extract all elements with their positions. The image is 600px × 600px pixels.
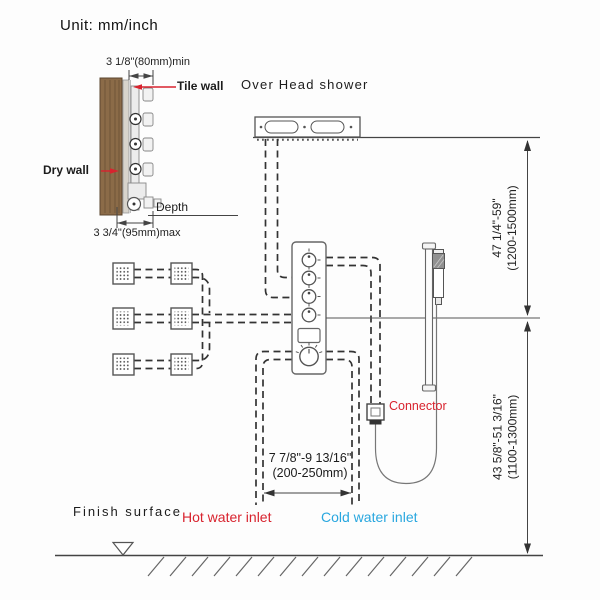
- pipe-overhead-shower: [266, 139, 293, 298]
- dry-wall-label: Dry wall: [43, 163, 89, 177]
- ground-hatching: [148, 557, 472, 576]
- overhead-shower-label: Over Head shower: [241, 77, 369, 92]
- slide-bar-top-mount: [423, 243, 436, 249]
- hot-water-inlet-label: Hot water inlet: [182, 509, 271, 525]
- valve-display: [298, 329, 320, 343]
- tile-wall-label: Tile wall: [177, 79, 223, 93]
- depth-label: Depth: [156, 200, 188, 214]
- level-marker-icon: [113, 543, 133, 556]
- dimension-inlet-spacing: [264, 490, 351, 497]
- dim-95mm-label: 3 3/4"(95mm)max: [76, 227, 198, 239]
- lower-height-inch: 43 5/8"-51 3/16": [491, 370, 506, 505]
- slide-bar: [426, 249, 433, 386]
- pipe-hand-shower: [326, 258, 380, 405]
- connector-label: Connector: [389, 399, 447, 413]
- overhead-shower: [253, 117, 540, 140]
- inlet-spacing-dimension-label: 7 7/8"-9 13/16" (200-250mm): [247, 451, 373, 481]
- tile-wall-arrow: [133, 84, 176, 89]
- inlet-spacing-mm: (200-250mm): [247, 466, 373, 481]
- dim-80mm-label: 3 1/8"(80mm)min: [92, 56, 204, 68]
- dimension-right: [524, 140, 531, 554]
- hand-shower-wand: [433, 250, 445, 305]
- body-jets: [113, 263, 192, 375]
- pipe-hot-water: [256, 352, 292, 506]
- upper-height-dimension-label: 47 1/4"-59" (1200-1500mm): [490, 163, 520, 293]
- slide-bar-bottom-mount: [423, 385, 436, 391]
- connector-icon: [367, 404, 384, 425]
- upper-height-mm: (1200-1500mm): [505, 163, 520, 293]
- upper-height-inch: 47 1/4"-59": [490, 163, 505, 293]
- pipe-body-jets: [134, 270, 292, 369]
- unit-label: Unit: mm/inch: [60, 17, 158, 34]
- installation-diagram: Unit: mm/inch 3 1/8"(80mm)min Tile wall …: [0, 0, 600, 600]
- valve-side-view: [128, 86, 162, 211]
- pipe-cold-water: [326, 352, 359, 506]
- ground: [55, 543, 543, 577]
- lower-height-dimension-label: 43 5/8"-51 3/16" (1100-1300mm): [491, 370, 521, 505]
- cold-water-inlet-label: Cold water inlet: [321, 509, 418, 525]
- valve-panel: [292, 242, 326, 374]
- dim-80mm: [129, 70, 153, 85]
- finish-surface-label: Finish surface: [73, 504, 182, 519]
- inlet-spacing-inch: 7 7/8"-9 13/16": [247, 451, 373, 466]
- lower-height-mm: (1100-1300mm): [505, 370, 520, 505]
